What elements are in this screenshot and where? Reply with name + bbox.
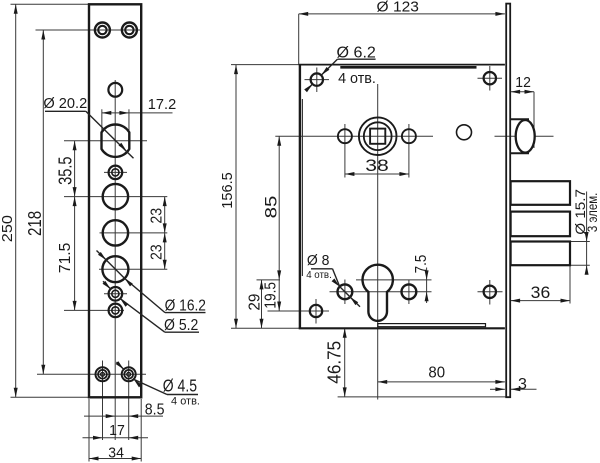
svg-text:35.5: 35.5: [55, 157, 75, 185]
svg-text:4 отв.: 4 отв.: [338, 71, 376, 87]
svg-text:46.75: 46.75: [325, 341, 345, 384]
svg-text:85: 85: [262, 196, 281, 219]
svg-text:80: 80: [428, 365, 445, 382]
svg-text:Ø 5.2: Ø 5.2: [164, 317, 198, 334]
svg-text:19.5: 19.5: [263, 282, 280, 309]
svg-text:4 отв.: 4 отв.: [171, 396, 200, 408]
svg-text:36: 36: [531, 283, 551, 302]
svg-text:156.5: 156.5: [219, 172, 236, 208]
svg-text:Ø 16.2: Ø 16.2: [165, 298, 206, 315]
svg-text:7.5: 7.5: [413, 255, 430, 274]
svg-text:4 отв.: 4 отв.: [306, 270, 332, 281]
svg-text:3 элем.: 3 элем.: [584, 193, 600, 233]
svg-text:17: 17: [109, 422, 125, 439]
svg-text:218: 218: [25, 211, 45, 236]
svg-text:3: 3: [518, 376, 527, 393]
svg-text:38: 38: [365, 156, 389, 175]
svg-text:8.5: 8.5: [145, 401, 165, 418]
svg-text:Ø 20.2: Ø 20.2: [43, 95, 87, 112]
svg-text:29: 29: [247, 293, 264, 310]
svg-text:Ø 123: Ø 123: [377, 0, 419, 16]
svg-text:17.2: 17.2: [148, 96, 176, 113]
svg-text:Ø 6.2: Ø 6.2: [337, 45, 376, 62]
svg-text:71.5: 71.5: [57, 243, 74, 274]
svg-text:12: 12: [515, 75, 531, 91]
svg-text:250: 250: [0, 215, 16, 242]
svg-text:Ø 4.5: Ø 4.5: [163, 376, 197, 396]
svg-text:34: 34: [108, 445, 124, 462]
svg-text:23: 23: [148, 244, 165, 260]
svg-text:Ø 8: Ø 8: [307, 252, 330, 269]
svg-text:23: 23: [148, 208, 165, 224]
